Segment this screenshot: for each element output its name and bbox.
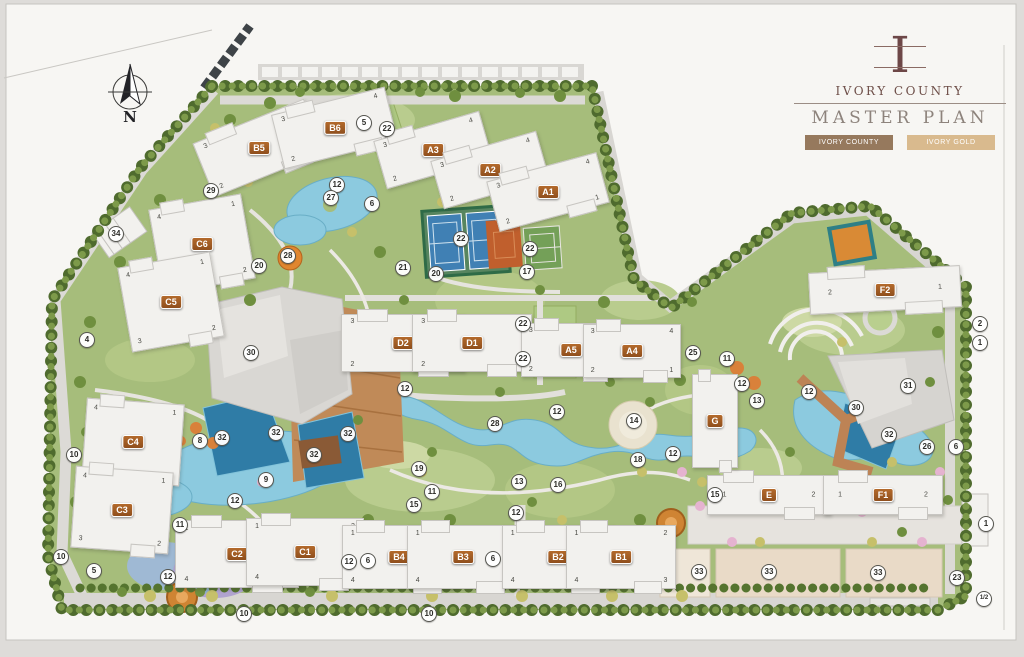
unit-number: 3 [203, 143, 209, 151]
map-marker-13[interactable]: 13 [749, 393, 765, 409]
map-marker-8[interactable]: 8 [192, 433, 208, 449]
building-chip-B6[interactable]: B6 [323, 121, 345, 135]
map-marker-27[interactable]: 27 [323, 190, 339, 206]
unit-number: 2 [591, 367, 595, 374]
map-marker-25[interactable]: 25 [685, 345, 701, 361]
map-marker-20[interactable]: 20 [251, 258, 267, 274]
unit-number: 3 [496, 182, 502, 190]
map-marker-12[interactable]: 12 [665, 446, 681, 462]
map-marker-22[interactable]: 22 [379, 121, 395, 137]
map-marker-11[interactable]: 11 [719, 351, 735, 367]
map-marker-16[interactable]: 16 [550, 477, 566, 493]
unit-number: 2 [421, 361, 425, 368]
unit-number: 3 [440, 161, 446, 169]
unit-number: 2 [290, 155, 295, 163]
unit-number: 3 [351, 318, 355, 325]
building-E: 12E [707, 475, 831, 515]
unit-number: 4 [525, 137, 531, 145]
map-marker-33[interactable]: 33 [761, 564, 777, 580]
map-marker-12[interactable]: 12 [734, 376, 750, 392]
map-marker-11[interactable]: 11 [172, 517, 188, 533]
unit-number: 1 [511, 530, 515, 537]
map-marker-32[interactable]: 32 [881, 427, 897, 443]
map-marker-18[interactable]: 18 [630, 452, 646, 468]
building-chip-B1[interactable]: B1 [610, 550, 632, 564]
unit-number: 2 [219, 182, 225, 190]
map-marker-22[interactable]: 22 [515, 316, 531, 332]
building-chip-C5[interactable]: C5 [160, 295, 182, 309]
unit-number: 4 [255, 574, 259, 581]
building-A4: 3421A4 [583, 324, 681, 378]
map-marker-5[interactable]: 5 [356, 115, 372, 131]
unit-number: 2 [828, 289, 832, 296]
map-marker-12[interactable]: 12 [801, 384, 817, 400]
unit-number: 1 [723, 492, 727, 499]
map-marker-20[interactable]: 20 [428, 266, 444, 282]
map-marker-21[interactable]: 21 [395, 260, 411, 276]
plan-tabs: IVORY COUNTY IVORY GOLD [790, 135, 1010, 150]
map-marker-12[interactable]: 12 [227, 493, 243, 509]
unit-number: 1 [838, 492, 842, 499]
unit-number: 4 [126, 272, 131, 280]
building-chip-A2[interactable]: A2 [479, 163, 501, 177]
unit-number: 2 [924, 492, 928, 499]
building-chip-B5[interactable]: B5 [248, 141, 270, 155]
building-chip-F2[interactable]: F2 [875, 283, 896, 297]
unit-number: 2 [664, 530, 668, 537]
map-marker-22[interactable]: 22 [515, 351, 531, 367]
unit-number: 2 [811, 492, 815, 499]
map-marker-13[interactable]: 13 [511, 474, 527, 490]
brand-divider [794, 103, 1006, 104]
map-marker-1[interactable]: 1 [972, 335, 988, 351]
unit-number: 1 [938, 284, 942, 291]
unit-number: 4 [669, 328, 673, 335]
unit-number: 4 [416, 577, 420, 584]
unit-number: 1 [669, 367, 673, 374]
brand-panel: I IVORY COUNTY MASTER PLAN IVORY COUNTY … [790, 30, 1010, 150]
unit-number: 4 [157, 214, 162, 222]
map-marker-31[interactable]: 31 [900, 378, 916, 394]
map-marker-33[interactable]: 33 [691, 564, 707, 580]
building-chip-F1[interactable]: F1 [873, 488, 894, 502]
building-chip-D2[interactable]: D2 [392, 336, 414, 350]
unit-number: 3 [421, 318, 425, 325]
compass-rose-icon: N [98, 60, 162, 140]
map-marker-5[interactable]: 5 [86, 563, 102, 579]
map-canvas: 3421B53421B63421A33421A23421A14132C64132… [0, 0, 1024, 657]
unit-number: 3 [383, 141, 389, 149]
building-chip-A1[interactable]: A1 [537, 185, 559, 199]
map-marker-14[interactable]: 14 [626, 413, 642, 429]
unit-number: 4 [468, 117, 474, 125]
unit-number: 4 [372, 93, 377, 101]
compass-n-label: N [123, 108, 137, 126]
unit-number: 1 [231, 201, 236, 209]
map-marker-4[interactable]: 4 [79, 332, 95, 348]
building-F1: 12F1 [823, 475, 943, 515]
map-marker-10[interactable]: 10 [236, 606, 252, 622]
map-marker-12[interactable]: 12 [160, 569, 176, 585]
building-B1: 1243B1 [566, 525, 676, 589]
unit-number: 4 [511, 577, 515, 584]
brand-monogram: I [880, 30, 920, 80]
building-chip-E[interactable]: E [761, 488, 777, 502]
unit-number: 2 [157, 541, 161, 548]
masterplan-title: MASTER PLAN [790, 108, 1010, 128]
building-chip-A5[interactable]: A5 [560, 343, 582, 357]
unit-number: 4 [585, 158, 591, 166]
map-marker-12[interactable]: 12 [549, 404, 565, 420]
map-marker-9[interactable]: 9 [258, 472, 274, 488]
building-chip-A4[interactable]: A4 [621, 344, 643, 358]
unit-number: 3 [137, 338, 142, 346]
building-chip-G[interactable]: G [706, 414, 723, 428]
map-marker-34[interactable]: 34 [108, 226, 124, 242]
unit-number: 3 [591, 328, 595, 335]
unit-number: 2 [211, 325, 216, 333]
unit-number: 4 [94, 404, 98, 411]
map-marker-15[interactable]: 15 [707, 487, 723, 503]
map-marker-10[interactable]: 10 [66, 447, 82, 463]
building-chip-C3[interactable]: C3 [111, 503, 133, 517]
unit-number: 2 [449, 195, 455, 203]
unit-number: 4 [185, 576, 189, 583]
map-marker-17[interactable]: 17 [519, 264, 535, 280]
unit-number: 2 [392, 175, 398, 183]
unit-number: 1 [575, 530, 579, 537]
map-marker-30[interactable]: 30 [243, 345, 259, 361]
map-marker-10[interactable]: 10 [421, 606, 437, 622]
unit-number: 2 [351, 361, 355, 368]
unit-number: 1 [172, 409, 176, 416]
unit-number: 1 [595, 194, 601, 202]
map-marker-6[interactable]: 6 [360, 553, 376, 569]
unit-number: 1 [200, 259, 205, 267]
map-marker-22[interactable]: 22 [453, 231, 469, 247]
brand-name: IVORY COUNTY [790, 84, 1010, 98]
map-marker-10[interactable]: 10 [53, 549, 69, 565]
unit-number: 1 [351, 530, 355, 537]
map-marker-12[interactable]: 12 [397, 381, 413, 397]
map-marker-2[interactable]: 2 [972, 316, 988, 332]
map-marker-32[interactable]: 32 [214, 430, 230, 446]
map-marker-1[interactable]: 1 [978, 516, 994, 532]
map-marker-6[interactable]: 6 [948, 439, 964, 455]
unit-number: 4 [351, 577, 355, 584]
building-chip-D1[interactable]: D1 [461, 336, 483, 350]
unit-number: 3 [78, 535, 82, 542]
unit-number: 2 [529, 366, 533, 373]
map-marker-28[interactable]: 28 [280, 248, 296, 264]
map-marker-22[interactable]: 22 [522, 241, 538, 257]
unit-number: 1 [161, 477, 165, 484]
map-marker-12[interactable]: 12 [508, 505, 524, 521]
map-marker-6[interactable]: 6 [485, 551, 501, 567]
compass: N [98, 60, 162, 145]
building-C5: 4132C5 [117, 251, 225, 352]
map-marker-6[interactable]: 6 [364, 196, 380, 212]
map-marker-32[interactable]: 32 [268, 425, 284, 441]
map-marker-32[interactable]: 32 [340, 426, 356, 442]
map-marker-15[interactable]: 15 [406, 497, 422, 513]
building-chip-C6[interactable]: C6 [191, 237, 213, 251]
map-marker-26[interactable]: 26 [919, 439, 935, 455]
tab-ivory-county[interactable]: IVORY COUNTY [805, 135, 893, 150]
building-chip-C2[interactable]: C2 [226, 547, 248, 561]
map-marker-11[interactable]: 11 [424, 484, 440, 500]
map-marker-29[interactable]: 29 [203, 183, 219, 199]
unit-number: 1 [416, 530, 420, 537]
map-marker-12[interactable]: 12 [341, 554, 357, 570]
tab-ivory-gold[interactable]: IVORY GOLD [907, 135, 995, 150]
building-F2: 21F2 [808, 265, 962, 315]
map-marker-32[interactable]: 32 [306, 447, 322, 463]
unit-number: 4 [83, 472, 87, 479]
unit-number: 2 [242, 267, 247, 275]
unit-number: 3 [664, 577, 668, 584]
unit-number: 2 [505, 218, 511, 226]
unit-number: 1 [255, 523, 259, 530]
building-chip-A3[interactable]: A3 [422, 143, 444, 157]
building-G: G [692, 374, 738, 468]
map-marker-33[interactable]: 33 [870, 565, 886, 581]
building-C3: 4132C3 [70, 466, 173, 555]
map-marker-28[interactable]: 28 [487, 416, 503, 432]
unit-number: 4 [575, 577, 579, 584]
building-chip-C1[interactable]: C1 [294, 545, 316, 559]
map-marker-1/2[interactable]: 1/2 [976, 591, 992, 607]
unit-number: 3 [280, 116, 285, 124]
building-chip-B3[interactable]: B3 [452, 550, 474, 564]
map-marker-30[interactable]: 30 [848, 400, 864, 416]
building-D1: 3421D1 [412, 314, 532, 372]
map-marker-19[interactable]: 19 [411, 461, 427, 477]
map-marker-23[interactable]: 23 [949, 570, 965, 586]
building-chip-C4[interactable]: C4 [122, 435, 144, 449]
